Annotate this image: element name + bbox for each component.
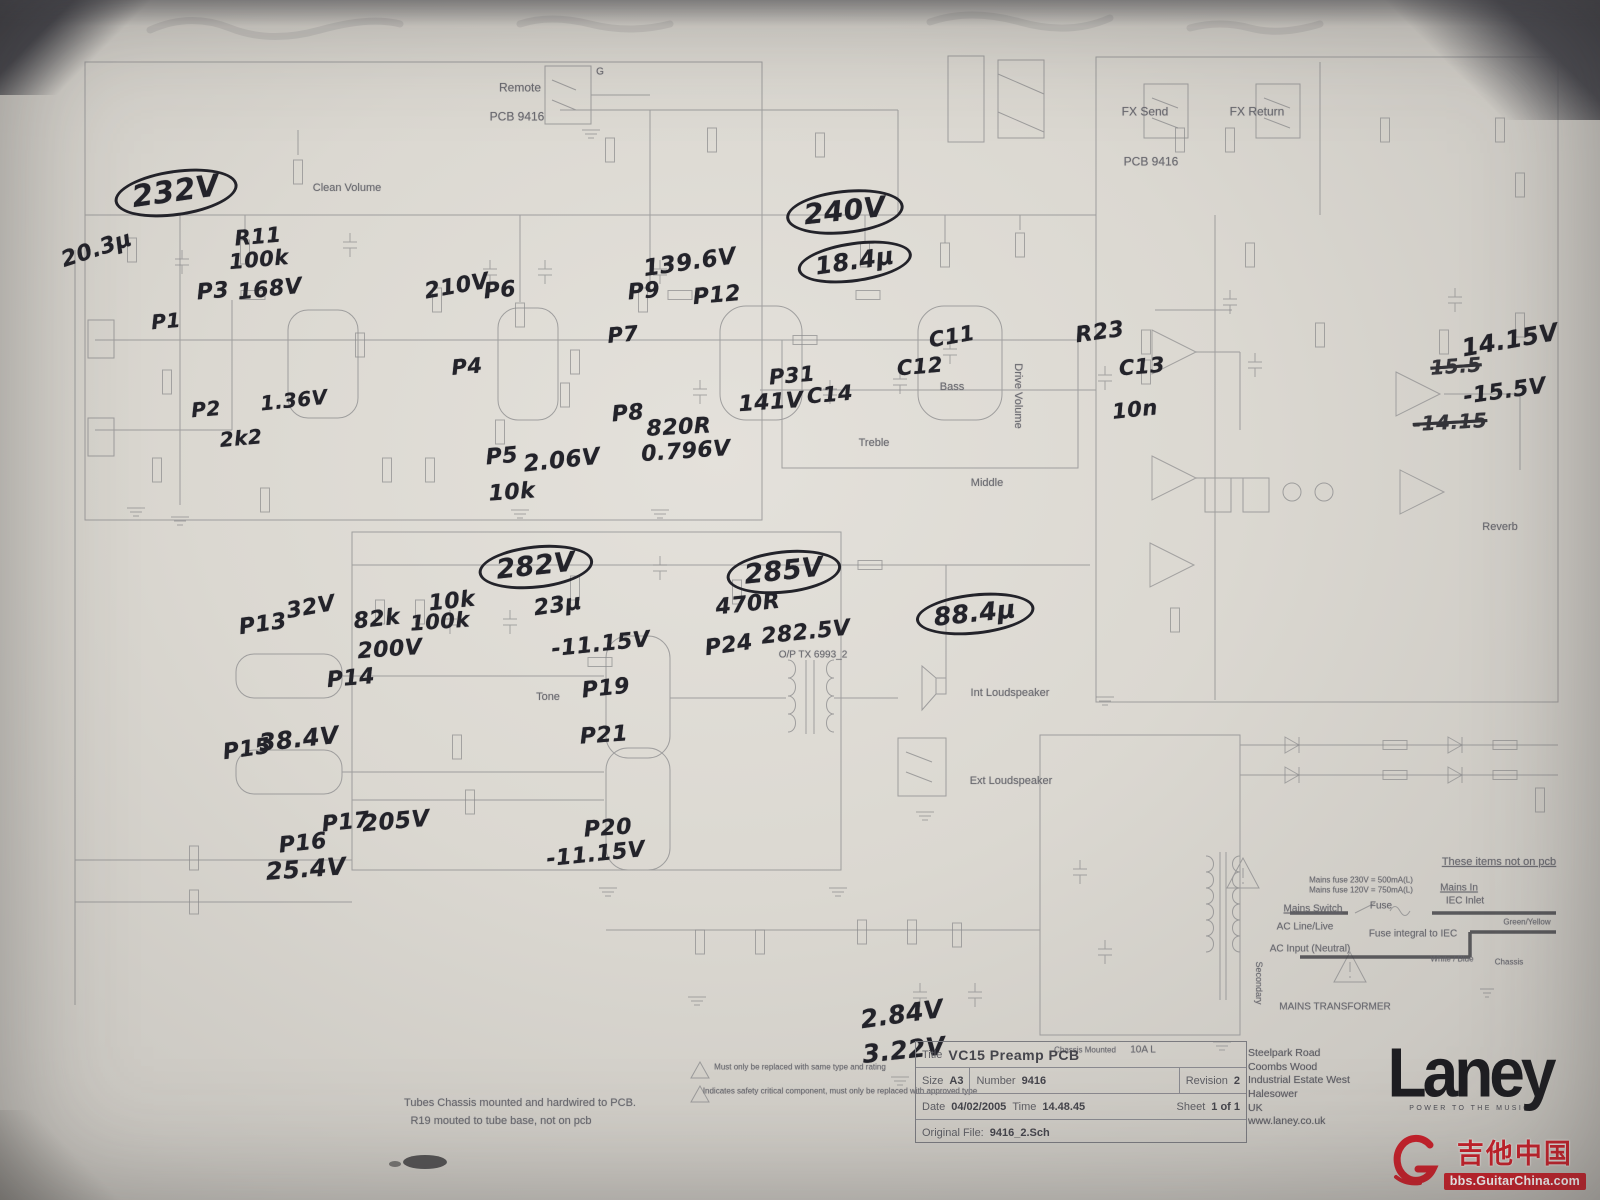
brand-block: Laney POWER TO THE MUSIC (1376, 1041, 1564, 1112)
printed-label: Mains fuse 120V = 750mA(L) (1309, 887, 1413, 896)
handwritten-annotation: C12 (896, 355, 944, 380)
printed-label: FX Return (1230, 105, 1285, 118)
printed-label: O/P TX 6993_2 (779, 650, 848, 661)
watermark-site-name: 吉他中国 (1457, 1132, 1573, 1171)
printed-label: IEC Inlet (1446, 896, 1484, 907)
handwritten-annotation: 10k (488, 480, 536, 505)
handwritten-annotation: 82k (353, 607, 402, 634)
printed-label: Bass (940, 381, 964, 393)
printed-label: Fuse (1370, 901, 1392, 912)
handwritten-annotation: 1.36V (259, 387, 328, 414)
printed-label: Treble (859, 437, 890, 449)
printed-label: Drive Volume (1012, 363, 1024, 428)
title-block: Title VC15 Preamp PCB Size A3 Number 941… (915, 1041, 1247, 1143)
guitarchina-watermark: 吉他中国 bbs.GuitarChina.com (1388, 1132, 1586, 1190)
printed-label: AC Line/Live (1277, 922, 1334, 933)
time-value: 14.48.45 (1042, 1101, 1085, 1113)
number-value: 9416 (1022, 1075, 1046, 1087)
printed-label: Clean Volume (313, 182, 382, 194)
title-block-row-date: Date 04/02/2005 Time 14.48.45 Sheet 1 of… (916, 1093, 1246, 1119)
printed-label: AC Input (Neutral) (1270, 944, 1351, 955)
handwritten-annotation: P6 (483, 279, 517, 304)
address-line: Halesower (1248, 1088, 1376, 1102)
printed-label: Green/Yellow (1503, 919, 1550, 928)
handwritten-annotation: 141V (738, 390, 804, 416)
revision-label: Revision (1186, 1075, 1228, 1087)
handwritten-annotation: P5 (485, 445, 519, 470)
handwritten-annotation: 25.4V (265, 854, 347, 884)
time-label: Time (1012, 1101, 1036, 1113)
printed-label: R19 mouted to tube base, not on pcb (410, 1115, 591, 1127)
handwritten-annotation: P19 (581, 676, 631, 703)
schematic-linework (0, 0, 1600, 1200)
address-line: Industrial Estate West (1248, 1074, 1376, 1088)
address-line: Steelpark Road (1248, 1047, 1376, 1061)
printed-label: PCB 9416 (1124, 155, 1179, 168)
printed-label: FX Send (1122, 105, 1169, 118)
printed-label: Remote (499, 81, 541, 94)
printed-label: MAINS TRANSFORMER (1279, 1002, 1391, 1013)
printed-label: Fuse integral to IEC (1369, 929, 1457, 940)
drawing-title: VC15 Preamp PCB (948, 1047, 1079, 1063)
handwritten-annotation: P7 (607, 323, 640, 347)
printed-label: G (596, 67, 604, 78)
sheet-label: Sheet (1177, 1101, 1206, 1113)
printed-label: Middle (971, 477, 1003, 489)
printed-label: Secondary (1253, 961, 1263, 1004)
printed-label: Int Loudspeaker (971, 687, 1050, 699)
date-label: Date (922, 1101, 945, 1113)
company-block: Steelpark RoadCoombs WoodIndustrial Esta… (1248, 1041, 1564, 1141)
size-value: A3 (949, 1075, 963, 1087)
revision-value: 2 (1234, 1075, 1240, 1087)
handwritten-annotation: P12 (692, 283, 742, 309)
sheet-value: 1 of 1 (1211, 1101, 1240, 1113)
printed-label: Mains fuse 230V = 500mA(L) (1309, 877, 1413, 886)
file-label: Original File: (922, 1127, 984, 1139)
handwritten-annotation: P1 (150, 310, 181, 333)
guitarchina-logo-icon (1388, 1133, 1440, 1189)
handwritten-annotation: C14 (806, 383, 854, 408)
handwritten-annotation: 200V (357, 637, 423, 663)
printed-label: Mains Switch (1284, 904, 1343, 915)
printed-label: PCB 9416 (490, 110, 545, 123)
address-line: UK (1248, 1102, 1376, 1116)
handwritten-annotation: P3 (196, 280, 230, 305)
printed-label: Reverb (1482, 521, 1517, 533)
handwritten-annotation: 10n (1111, 397, 1159, 423)
company-address: Steelpark RoadCoombs WoodIndustrial Esta… (1248, 1041, 1376, 1129)
printed-label: Tone (536, 691, 560, 703)
handwritten-annotation: 2k2 (219, 426, 263, 450)
title-block-row-size: Size A3 Number 9416 Revision 2 (916, 1067, 1246, 1093)
watermark-site-url: bbs.GuitarChina.com (1444, 1173, 1586, 1190)
number-label: Number (976, 1075, 1015, 1087)
date-value: 04/02/2005 (951, 1101, 1006, 1113)
title-block-row-file: Original File: 9416_2.Sch (916, 1119, 1246, 1145)
size-label: Size (922, 1075, 943, 1087)
handwritten-annotation: -14.15 (1412, 410, 1488, 434)
handwritten-annotation: 100k (228, 247, 289, 273)
handwritten-annotation: C13 (1118, 355, 1166, 380)
schematic-photo: { "title_block": { "title_label": "Title… (0, 0, 1600, 1200)
printed-label: Tubes Chassis mounted and hardwired to P… (404, 1097, 636, 1109)
handwritten-annotation: 15.5 (1430, 354, 1483, 378)
printed-label: Ext Loudspeaker (970, 775, 1053, 787)
file-value: 9416_2.Sch (990, 1127, 1050, 1139)
address-line: Coombs Wood (1248, 1061, 1376, 1075)
printed-label: Mains In (1440, 883, 1478, 894)
laney-logo: Laney (1376, 1041, 1564, 1107)
handwritten-annotation: 100k (409, 609, 470, 634)
printed-label: These items not on pcb (1442, 856, 1556, 868)
handwritten-annotation: P14 (326, 666, 376, 692)
printed-label: White / Blue (1430, 956, 1473, 965)
handwritten-annotation: P2 (190, 398, 221, 421)
handwritten-annotation: 205V (361, 808, 431, 837)
printed-label: Chassis (1495, 959, 1523, 968)
printed-label: Must only be replaced with same type and… (714, 1064, 886, 1073)
handwritten-annotation: P9 (627, 280, 661, 305)
handwritten-annotation: P4 (451, 355, 484, 379)
title-label: Title (922, 1049, 942, 1061)
handwritten-annotation: P21 (579, 723, 629, 748)
handwritten-annotation: P8 (611, 402, 645, 427)
title-block-row-title: Title VC15 Preamp PCB (916, 1042, 1246, 1067)
address-line: www.laney.co.uk (1248, 1115, 1376, 1129)
